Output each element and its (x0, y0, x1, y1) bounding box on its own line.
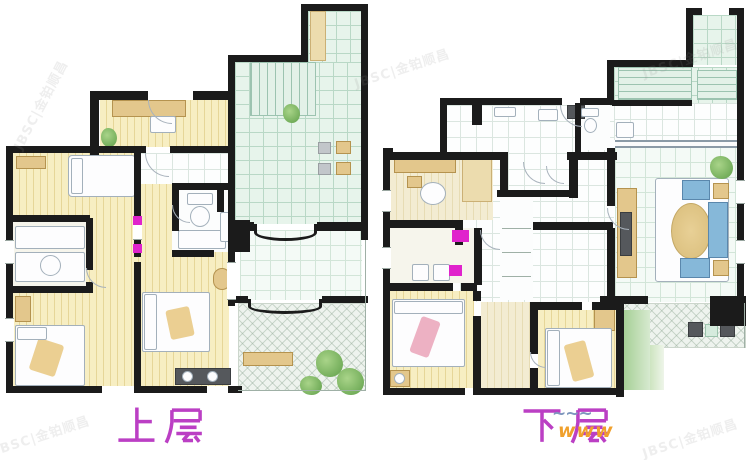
wall (480, 388, 624, 395)
plant (710, 156, 733, 179)
sofa (682, 180, 710, 200)
side-table (713, 260, 729, 276)
counter (494, 107, 516, 117)
shelf (502, 276, 531, 277)
wall (569, 160, 578, 198)
staircase-upper (697, 70, 737, 100)
sofa-long (708, 202, 728, 258)
wall (383, 283, 453, 291)
cabinet (462, 158, 492, 202)
wall (383, 148, 390, 395)
label-glyph-shang (114, 404, 158, 448)
wall (607, 228, 615, 302)
line (744, 303, 745, 348)
hedge (620, 310, 650, 390)
sofa (680, 258, 710, 278)
chair (688, 322, 703, 337)
wall (444, 98, 562, 105)
window (736, 240, 745, 264)
wall (440, 98, 447, 156)
wall (600, 296, 648, 304)
pillow (547, 330, 560, 386)
shelf (502, 228, 531, 229)
chair (407, 176, 422, 188)
column (710, 296, 746, 326)
wall (500, 160, 508, 192)
wall (530, 302, 538, 354)
floor-plan-image: 上层 下层 ~~~ www JBSC|金铂顺昌JBSC|金铂顺昌JBSC|金铂顺… (0, 0, 746, 460)
desk (394, 158, 456, 173)
basin (616, 122, 634, 138)
wall (616, 302, 624, 397)
toilet-bowl (584, 118, 597, 133)
shelf (502, 252, 531, 253)
sink (538, 109, 558, 121)
door-marker (452, 230, 469, 242)
wall (383, 220, 457, 228)
window (382, 190, 391, 212)
wall (580, 98, 614, 105)
window-band (615, 140, 737, 148)
table (420, 182, 446, 205)
wall (737, 8, 744, 148)
wall (533, 222, 613, 230)
upper-floor-label: 上层 (114, 404, 208, 448)
pillow (394, 301, 463, 314)
wall (497, 190, 570, 197)
corridor-floor (481, 302, 530, 388)
wall (386, 152, 508, 160)
closet (500, 197, 533, 300)
wall (383, 388, 465, 395)
label-glyph-ceng (164, 404, 208, 448)
side-table (713, 183, 729, 199)
www-watermark-scribble: www (558, 420, 614, 442)
wall (737, 148, 744, 302)
toilet-tank (581, 108, 599, 117)
wall (607, 148, 615, 206)
wall (472, 103, 482, 125)
wall (473, 291, 481, 301)
lamp (394, 373, 405, 384)
window (736, 180, 745, 204)
rug-oval (671, 203, 711, 259)
wall (530, 368, 538, 395)
door-marker (449, 265, 462, 276)
window (382, 247, 391, 269)
wall (612, 100, 692, 106)
wall (473, 316, 481, 395)
door-swing (530, 352, 546, 368)
washer (412, 264, 429, 281)
washer (433, 264, 450, 281)
hedge (650, 345, 664, 390)
